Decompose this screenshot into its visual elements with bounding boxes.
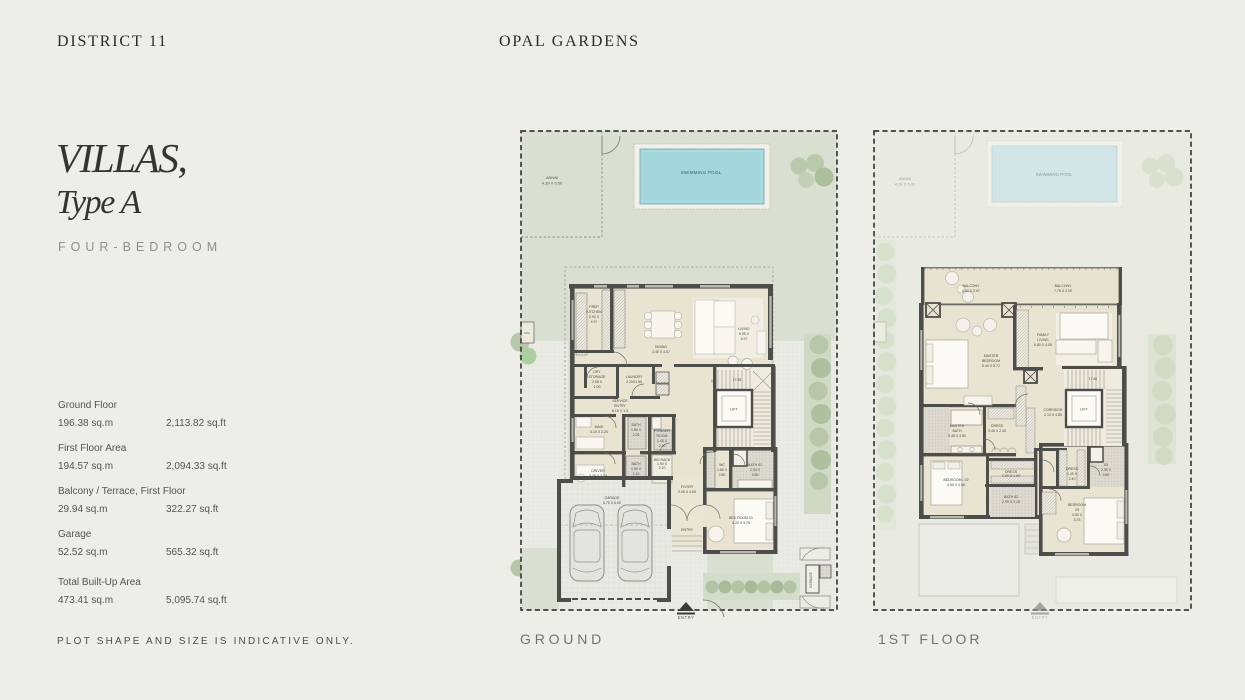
svg-text:2.90 X 1.90: 2.90 X 1.90 [1002, 474, 1020, 478]
svg-text:4.60 X 2.67: 4.60 X 2.67 [962, 289, 980, 293]
svg-text:1.45 X: 1.45 X [657, 439, 668, 443]
svg-text:LAUNDRY: LAUNDRY [626, 375, 643, 379]
svg-text:ANNBI: ANNBI [899, 176, 911, 181]
svg-text:BALCONY: BALCONY [963, 284, 980, 288]
svg-text:4.39 X 6.00: 4.39 X 6.00 [895, 182, 916, 187]
svg-text:4.30 X: 4.30 X [1072, 513, 1083, 517]
svg-text:3.45 X 3.80: 3.45 X 3.80 [948, 434, 966, 438]
svg-text:MASTER: MASTER [950, 424, 965, 428]
svg-text:STORAGE: STORAGE [588, 375, 606, 379]
svg-text:6.80 X 4.05: 6.80 X 4.05 [1034, 343, 1052, 347]
svg-text:SWIMMING POOL: SWIMMING POOL [681, 170, 722, 175]
svg-text:ENTRY: ENTRY [678, 615, 695, 620]
svg-text:ENTRY: ENTRY [681, 528, 694, 532]
svg-text:DRY: DRY [593, 370, 601, 374]
svg-text:6.75 X 6.50: 6.75 X 6.50 [603, 501, 621, 505]
svg-text:BALCONY: BALCONY [1055, 284, 1072, 288]
svg-text:17.68: 17.68 [1089, 377, 1097, 381]
svg-text:SWIMMING POOL: SWIMMING POOL [1036, 172, 1073, 177]
svg-text:03: 03 [1104, 463, 1108, 467]
svg-text:POWDER: POWDER [654, 429, 670, 433]
svg-text:5.95 X: 5.95 X [739, 332, 750, 336]
svg-text:2.20X1.55: 2.20X1.55 [626, 380, 642, 384]
svg-text:2.10: 2.10 [659, 466, 666, 470]
svg-text:2.80: 2.80 [752, 473, 759, 477]
svg-text:1.50 X: 1.50 X [631, 467, 642, 471]
svg-text:1.85 X: 1.85 X [717, 468, 728, 472]
svg-text:LIFT: LIFT [730, 408, 738, 412]
svg-text:DRIVER: DRIVER [591, 469, 605, 473]
svg-text:BATH: BATH [952, 429, 962, 433]
svg-text:2.08 X: 2.08 X [592, 380, 603, 384]
svg-text:DRESS: DRESS [1066, 467, 1079, 471]
svg-text:GARBAGE: GARBAGE [809, 572, 813, 588]
svg-text:2.30 X: 2.30 X [750, 468, 761, 472]
svg-text:LIFT: LIFT [1080, 408, 1088, 412]
svg-text:FOYER: FOYER [681, 485, 694, 489]
svg-text:2.10: 2.10 [659, 444, 666, 448]
svg-text:7.75 X 2.00: 7.75 X 2.00 [1054, 289, 1072, 293]
svg-text:2.25: 2.25 [633, 433, 640, 437]
svg-text:3.45 X 4.87: 3.45 X 4.87 [652, 350, 670, 354]
svg-text:1.45 X: 1.45 X [1067, 472, 1078, 476]
svg-text:4.20 X 3.79: 4.20 X 3.79 [732, 521, 750, 525]
svg-text:3.10 X 2.25: 3.10 X 2.25 [590, 430, 608, 434]
svg-text:LIVING: LIVING [1037, 338, 1049, 342]
svg-text:2.80: 2.80 [719, 473, 726, 477]
svg-text:BATH: BATH [631, 462, 641, 466]
svg-text:GARAGE: GARAGE [605, 496, 621, 500]
svg-text:2.10: 2.10 [633, 472, 640, 476]
svg-text:4.97: 4.97 [741, 337, 748, 341]
svg-text:2.90 X 2.15: 2.90 X 2.15 [1002, 500, 1020, 504]
svg-text:3.45 X 2.40: 3.45 X 2.40 [988, 429, 1006, 433]
svg-text:PREP: PREP [589, 305, 599, 309]
svg-text:FAMILY: FAMILY [1037, 333, 1050, 337]
svg-text:3.35 X 2.10: 3.35 X 2.10 [589, 474, 607, 478]
svg-text:MAID: MAID [595, 425, 604, 429]
svg-text:4.90 X 4.06: 4.90 X 4.06 [947, 483, 965, 487]
svg-text:MASTER: MASTER [984, 354, 999, 358]
svg-text:BATH 01: BATH 01 [748, 463, 762, 467]
svg-text:2.80: 2.80 [1103, 473, 1110, 477]
svg-text:BED ROOM 01: BED ROOM 01 [729, 516, 753, 520]
svg-text:LPG: LPG [524, 331, 531, 335]
svg-text:3.76: 3.76 [1074, 518, 1081, 522]
svg-text:BEDROOM: BEDROOM [982, 359, 1000, 363]
svg-text:LIVING: LIVING [738, 327, 750, 331]
svg-text:BATH: BATH [631, 423, 641, 427]
svg-text:BEDROOM - 02: BEDROOM - 02 [943, 478, 968, 482]
svg-text:ENTRY: ENTRY [614, 404, 626, 408]
svg-text:2.90 X: 2.90 X [589, 315, 600, 319]
svg-text:2.10 X 4.85: 2.10 X 4.85 [1044, 413, 1062, 417]
svg-text:BEDROOM: BEDROOM [1068, 503, 1086, 507]
svg-text:6.15 X 1.3: 6.15 X 1.3 [612, 409, 628, 413]
svg-text:5.40 X 5.72: 5.40 X 5.72 [982, 364, 1000, 368]
svg-text:1.50 X: 1.50 X [631, 428, 642, 432]
svg-text:17.68: 17.68 [733, 378, 742, 382]
svg-text:ROOM: ROOM [657, 434, 668, 438]
svg-text:4.97: 4.97 [591, 320, 598, 324]
svg-text:4.39 X 6.00: 4.39 X 6.00 [542, 181, 563, 186]
svg-text:WC: WC [719, 463, 725, 467]
svg-text:2.40: 2.40 [1069, 477, 1076, 481]
svg-text:KITCHEN: KITCHEN [586, 310, 602, 314]
svg-text:1.00: 1.00 [594, 385, 601, 389]
svg-text:ANNBI: ANNBI [546, 175, 558, 180]
svg-text:DRESS: DRESS [991, 424, 1004, 428]
svg-text:ENTRY: ENTRY [1032, 615, 1049, 620]
svg-text:2.05 X 4.65: 2.05 X 4.65 [678, 490, 696, 494]
svg-text:03: 03 [1075, 508, 1079, 512]
svg-text:2.35 X: 2.35 X [1101, 468, 1112, 472]
svg-text:SERVICE: SERVICE [612, 399, 628, 403]
svg-text:CORRIDOR: CORRIDOR [1043, 408, 1063, 412]
svg-text:BATH 02: BATH 02 [1004, 495, 1018, 499]
svg-text:DINING: DINING [655, 345, 668, 349]
